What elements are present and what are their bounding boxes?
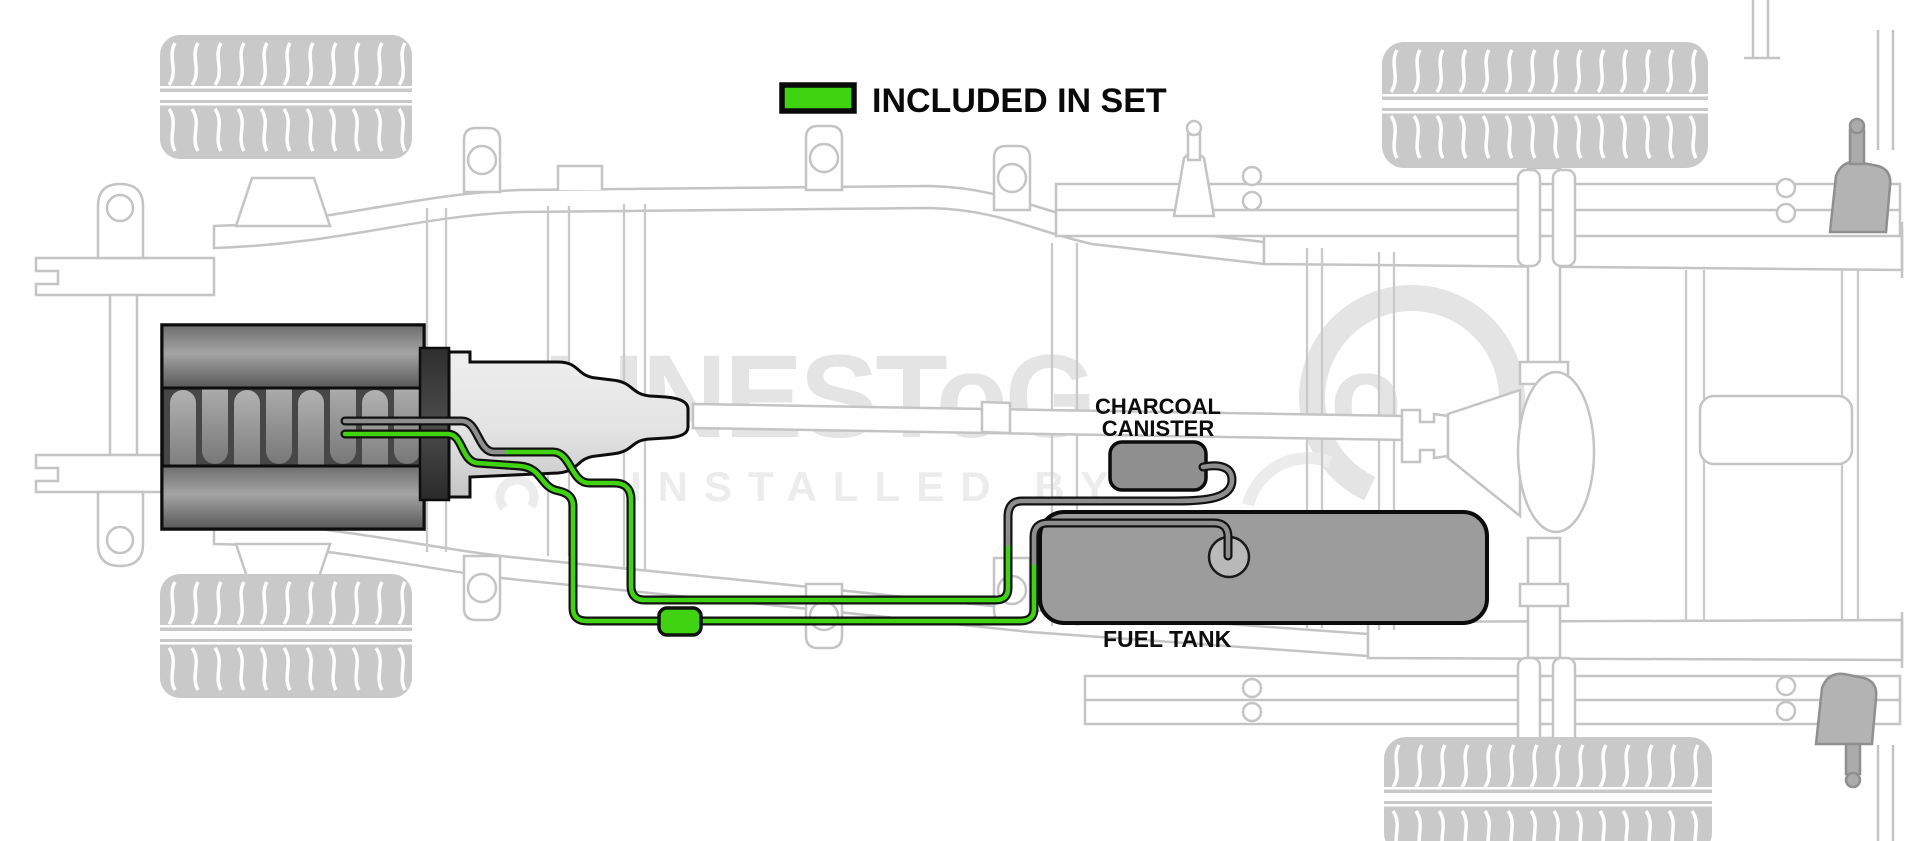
axle-collar-lower	[1520, 584, 1568, 606]
u-bolt-plate-bottom	[1553, 658, 1575, 750]
charcoal-canister	[1110, 442, 1206, 490]
front-hanger-lines-bottom	[1878, 745, 1893, 841]
charcoal-canister-label-line2: CANISTER	[1102, 416, 1215, 441]
u-bolt-plate-bottom	[1518, 658, 1540, 750]
shackle-ball-bottom	[1846, 773, 1860, 787]
u-joint-yoke	[1402, 410, 1448, 462]
shackle-bracket-top	[1830, 162, 1890, 232]
left-cross-vertical	[110, 295, 137, 455]
shackle-bracket-bottom	[1816, 674, 1876, 744]
crossmember-box	[1700, 396, 1852, 464]
tire-top-right	[1382, 42, 1708, 168]
fuel-tank	[1040, 512, 1487, 623]
hanger-hole	[468, 574, 496, 602]
spring-stud-ball-top	[1187, 121, 1201, 135]
frame-band-bottom-right	[1368, 620, 1902, 660]
legend-label: INCLUDED IN SET	[872, 82, 1167, 120]
tire-top-left	[160, 35, 412, 159]
u-bolt-plate-top	[1518, 170, 1540, 266]
clamp-ring	[1777, 702, 1795, 720]
differential-cone	[1448, 390, 1520, 516]
watermark-brand-suffix: o	[1330, 331, 1402, 463]
shackle-ball-top	[1850, 119, 1864, 133]
differential-housing	[1518, 372, 1594, 532]
shackle-stud-bottom	[1846, 744, 1860, 774]
fuel-filter	[659, 608, 701, 635]
hanger-hole	[998, 164, 1026, 192]
clamp-ring	[1243, 679, 1261, 697]
clamp-ring	[1243, 703, 1261, 721]
watermark-small-ring	[493, 473, 541, 521]
clamp-ring	[1777, 179, 1795, 197]
legend-swatch	[782, 85, 854, 111]
tire-bottom-right	[1384, 737, 1712, 841]
legend: INCLUDED IN SET	[782, 82, 1167, 120]
clamp-ring	[1777, 677, 1795, 695]
clamp-ring	[1243, 167, 1261, 185]
clamp-ring	[1777, 204, 1795, 222]
tire-bottom-left	[160, 574, 412, 698]
diagram-canvas: LINESToG o INSTALLED BY	[0, 0, 1930, 841]
rail-bracket-bump	[558, 166, 602, 190]
front-hanger-lines-top	[1744, 0, 1893, 150]
fuel-line-diagram-page: LINESToG o INSTALLED BY	[0, 0, 1930, 841]
u-bolt-plate-top	[1553, 170, 1575, 266]
cylinder-bank-top	[162, 325, 424, 388]
fuel-tank-label: FUEL TANK	[1103, 626, 1232, 652]
hanger-hole	[468, 146, 496, 174]
shackle-stud-top	[1850, 130, 1864, 164]
tow-hole-upper	[107, 195, 133, 221]
spring-stud-top	[1188, 134, 1200, 160]
tow-hole-lower	[107, 527, 133, 553]
hanger-hole	[810, 144, 838, 172]
left-horn-upper	[36, 258, 214, 295]
cylinder-bank-bottom	[162, 466, 424, 529]
hanger-hole	[810, 602, 838, 630]
cab-mount-upper	[236, 178, 330, 226]
driveshaft-collar	[982, 402, 1010, 433]
spring-eye-cone-top	[1174, 153, 1214, 216]
watermark-swoosh-arc	[1248, 458, 1330, 505]
clamp-ring	[1243, 192, 1261, 210]
